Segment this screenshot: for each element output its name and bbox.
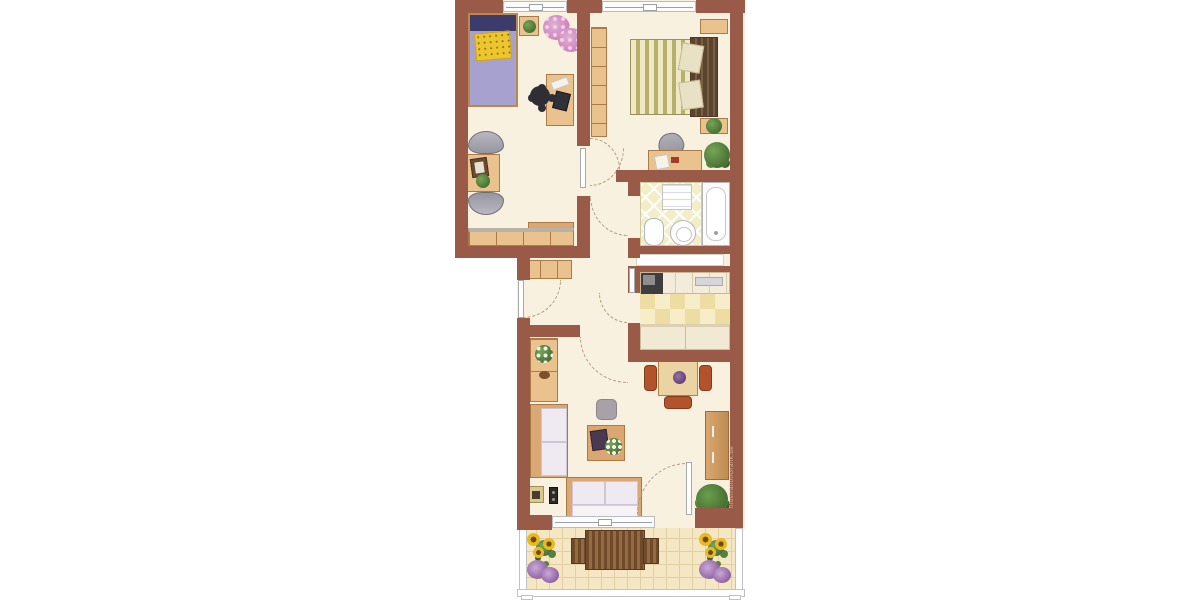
- speaker: [549, 487, 558, 504]
- window-handle: [529, 4, 543, 11]
- wall: [577, 0, 590, 146]
- speaker-knob: [552, 491, 555, 494]
- plant: [523, 20, 536, 33]
- flower-centerpiece: [673, 371, 686, 384]
- wall: [455, 0, 468, 258]
- plant: [476, 174, 490, 188]
- bowl: [539, 371, 550, 379]
- dining-chair: [664, 396, 692, 409]
- paper: [550, 76, 570, 91]
- purple-flowers: [713, 567, 731, 583]
- sunflower: [543, 538, 555, 550]
- dining-chair: [644, 365, 657, 391]
- picture: [532, 491, 540, 499]
- sunflower: [533, 547, 544, 558]
- single-bed: [468, 13, 518, 107]
- window-handle: [643, 4, 657, 11]
- laptop: [552, 90, 571, 111]
- service-shaft: [636, 254, 724, 266]
- sideboard: [530, 338, 558, 402]
- sunflower-planter: [698, 532, 736, 588]
- unit-divider: [685, 327, 686, 349]
- sunflower: [715, 538, 727, 550]
- speaker-knob: [552, 498, 555, 501]
- wall-shelf: [700, 19, 728, 34]
- desk: [648, 150, 702, 172]
- wall: [517, 515, 552, 530]
- sunflower-planter: [526, 532, 564, 588]
- floor-plant: [704, 142, 730, 168]
- floor-plan: IllustrationGrafik.de: [0, 0, 1200, 600]
- railing-foot: [729, 595, 741, 600]
- dining-table: [658, 360, 698, 396]
- plant-shelf: [700, 118, 728, 134]
- wall: [695, 508, 743, 528]
- balcony-bench-set: [571, 528, 657, 572]
- double-bed: [630, 37, 718, 115]
- children-room-window: [503, 1, 567, 12]
- picture: [474, 161, 484, 173]
- book: [671, 157, 679, 163]
- dining-chair: [699, 365, 712, 391]
- kitchen-door: [629, 268, 635, 293]
- master-bedroom-window: [602, 1, 696, 12]
- sofa-cushion: [541, 408, 567, 442]
- pouf: [596, 399, 617, 420]
- wall: [628, 246, 743, 254]
- wall: [455, 246, 590, 258]
- purple-flowers: [541, 567, 559, 583]
- wall: [517, 325, 530, 530]
- kitchen-base-units: [640, 324, 730, 350]
- sofa-cushion: [572, 481, 605, 505]
- sunflower: [527, 533, 540, 546]
- toilet: [670, 220, 696, 246]
- toilet-bowl: [676, 227, 692, 242]
- armchair: [468, 131, 504, 154]
- wall: [628, 266, 743, 272]
- sofa: [566, 477, 642, 518]
- coffee-table: [587, 425, 625, 461]
- wardrobe: [591, 27, 607, 137]
- sunflower: [705, 547, 716, 558]
- bed-pillow: [474, 30, 512, 61]
- sideboard: [468, 228, 574, 246]
- bed-headboard: [470, 15, 516, 31]
- wall: [628, 350, 743, 362]
- kitchen-floor-tiles: [640, 294, 730, 324]
- desk: [546, 74, 574, 126]
- flowering-plant: [535, 345, 553, 363]
- plant: [706, 118, 722, 134]
- stove-top: [643, 275, 655, 285]
- sofa-cushion: [541, 442, 567, 476]
- towel-shelf: [662, 184, 692, 210]
- water-heater: [644, 218, 664, 246]
- wall: [616, 170, 743, 182]
- sofa: [530, 404, 568, 478]
- watermark-text: IllustrationGrafik.de: [729, 436, 741, 508]
- sunflower: [699, 533, 712, 546]
- kitchen-sink: [695, 277, 723, 286]
- bench: [643, 538, 659, 564]
- window-handle: [598, 519, 612, 526]
- wooden-table: [585, 530, 645, 570]
- paper: [654, 154, 670, 170]
- balcony-railing-bottom: [517, 589, 745, 597]
- handle: [712, 452, 714, 463]
- side-table: [466, 154, 500, 192]
- bathtub-drain: [714, 231, 718, 235]
- children-room-door: [580, 148, 586, 188]
- bathtub: [702, 182, 730, 246]
- wall: [517, 258, 530, 280]
- stove: [641, 273, 663, 295]
- wall: [628, 182, 640, 196]
- handle: [712, 426, 714, 437]
- kitchen-counter: [640, 272, 730, 294]
- tv-board: [705, 411, 729, 480]
- bedside-plant-tile: [519, 16, 539, 36]
- wall: [517, 325, 580, 337]
- sofa-cushion: [605, 481, 638, 505]
- plant: [605, 438, 622, 455]
- desk-chair: [530, 86, 550, 106]
- balcony-window: [552, 516, 655, 528]
- bed-pillow: [678, 80, 704, 111]
- railing-foot: [521, 595, 533, 600]
- balcony-railing-right: [735, 528, 743, 590]
